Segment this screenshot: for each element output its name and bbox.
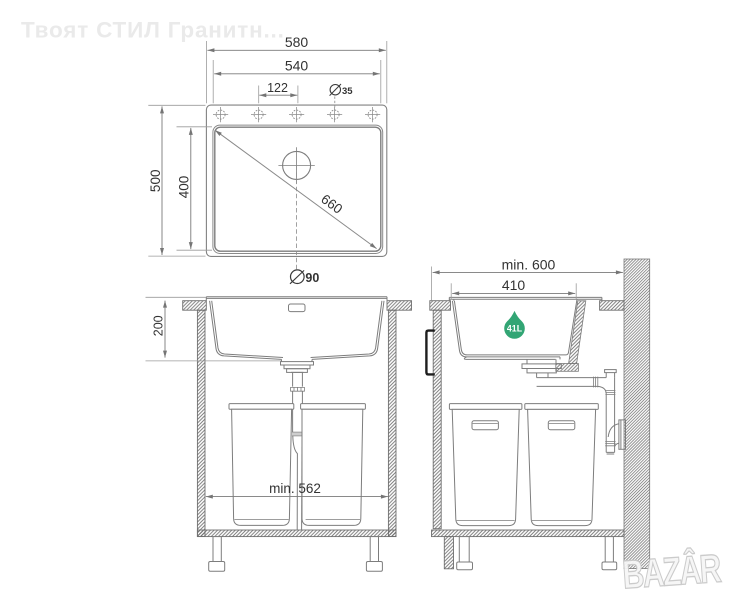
svg-text:min. 600: min. 600 xyxy=(502,256,556,272)
svg-text:min. 562: min. 562 xyxy=(269,481,321,496)
svg-text:500: 500 xyxy=(148,170,163,193)
svg-text:580: 580 xyxy=(285,34,309,50)
svg-text:41L: 41L xyxy=(507,324,523,334)
svg-text:410: 410 xyxy=(502,277,526,293)
svg-text:200: 200 xyxy=(151,315,165,336)
svg-text:540: 540 xyxy=(285,57,309,73)
svg-text:Твоят СТИЛ Гранитн...: Твоят СТИЛ Гранитн... xyxy=(21,18,285,43)
svg-text:35: 35 xyxy=(342,86,353,97)
svg-text:400: 400 xyxy=(177,176,192,199)
svg-text:122: 122 xyxy=(267,81,288,95)
svg-text:BAZÂR: BAZÂR xyxy=(621,546,722,598)
svg-text:90: 90 xyxy=(305,271,319,285)
